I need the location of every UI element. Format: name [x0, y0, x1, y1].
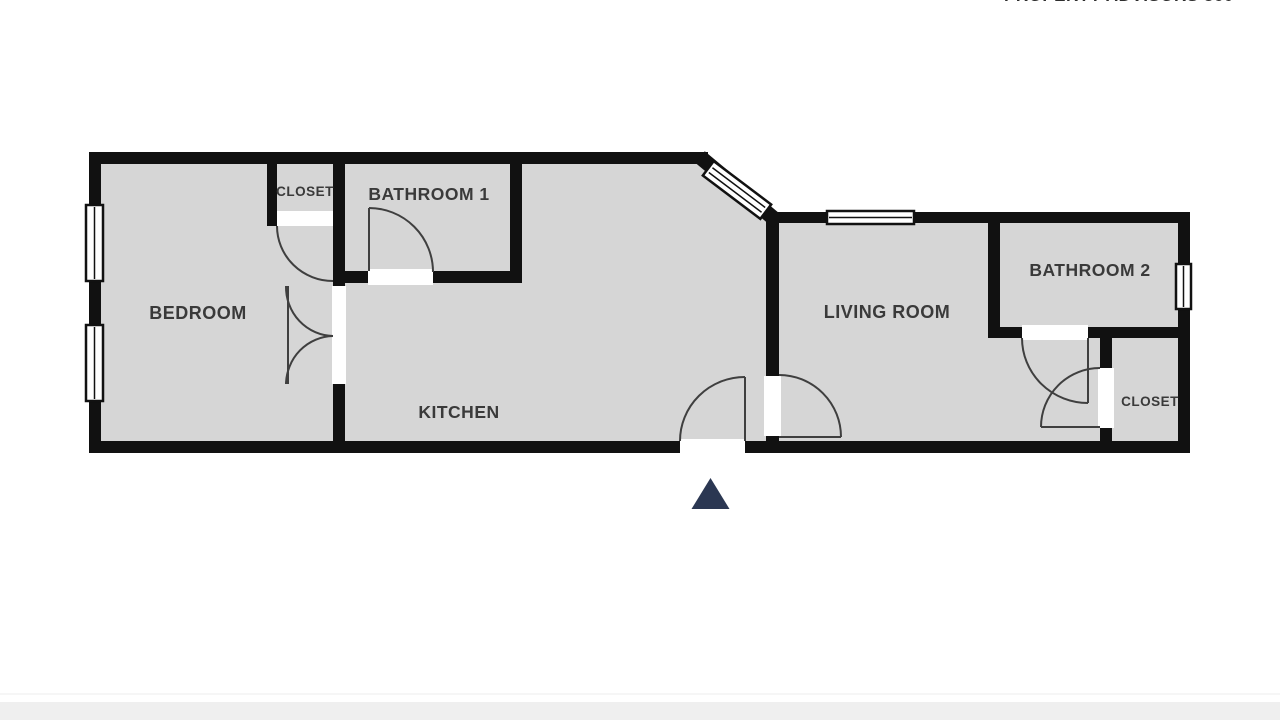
- label-closet-2: CLOSET: [1121, 394, 1179, 409]
- door-gap-kitchen-living: [764, 376, 781, 436]
- window-living-top: [827, 211, 914, 224]
- label-bathroom-2: BATHROOM 2: [1029, 260, 1150, 280]
- entrance-marker-icon: [692, 478, 730, 509]
- wall-kitchen-living-upper: [766, 212, 779, 376]
- door-gap-entry: [680, 439, 745, 455]
- wall-bottom: [89, 441, 1190, 453]
- label-closet-1: CLOSET: [276, 184, 334, 199]
- window-bedroom-lower: [86, 325, 103, 401]
- label-bathroom-1: BATHROOM 1: [368, 184, 489, 204]
- floor-plan: BEDROOM CLOSET BATHROOM 1 KITCHEN LIVING…: [0, 0, 1280, 720]
- floor-plan-page: PROPERTY ADVISORS 360: [0, 0, 1280, 720]
- door-gap-closet1: [277, 211, 333, 226]
- window-bedroom-upper: [86, 205, 103, 281]
- divider-hairline: [0, 693, 1280, 695]
- door-gap-bedroom: [332, 286, 346, 384]
- label-living-room: LIVING ROOM: [824, 302, 951, 322]
- wall-divider-lower: [333, 384, 345, 453]
- wall-bathroom2-left: [988, 212, 1000, 338]
- label-bedroom: BEDROOM: [149, 303, 247, 323]
- door-gap-bathroom1: [368, 269, 433, 285]
- window-bathroom2-right: [1176, 264, 1191, 309]
- apartment-footprint: [95, 158, 1184, 447]
- wall-bathroom2-bottom: [988, 327, 1190, 338]
- wall-kitchen-living-stub: [766, 436, 779, 453]
- footer-band: [0, 702, 1280, 720]
- wall-bathroom1-right: [510, 152, 522, 283]
- wall-left: [89, 152, 101, 453]
- door-gap-closet2: [1098, 368, 1114, 428]
- label-kitchen: KITCHEN: [418, 402, 499, 422]
- wall-divider-upper: [333, 152, 345, 286]
- wall-top: [89, 152, 708, 164]
- door-gap-bathroom2: [1022, 325, 1088, 340]
